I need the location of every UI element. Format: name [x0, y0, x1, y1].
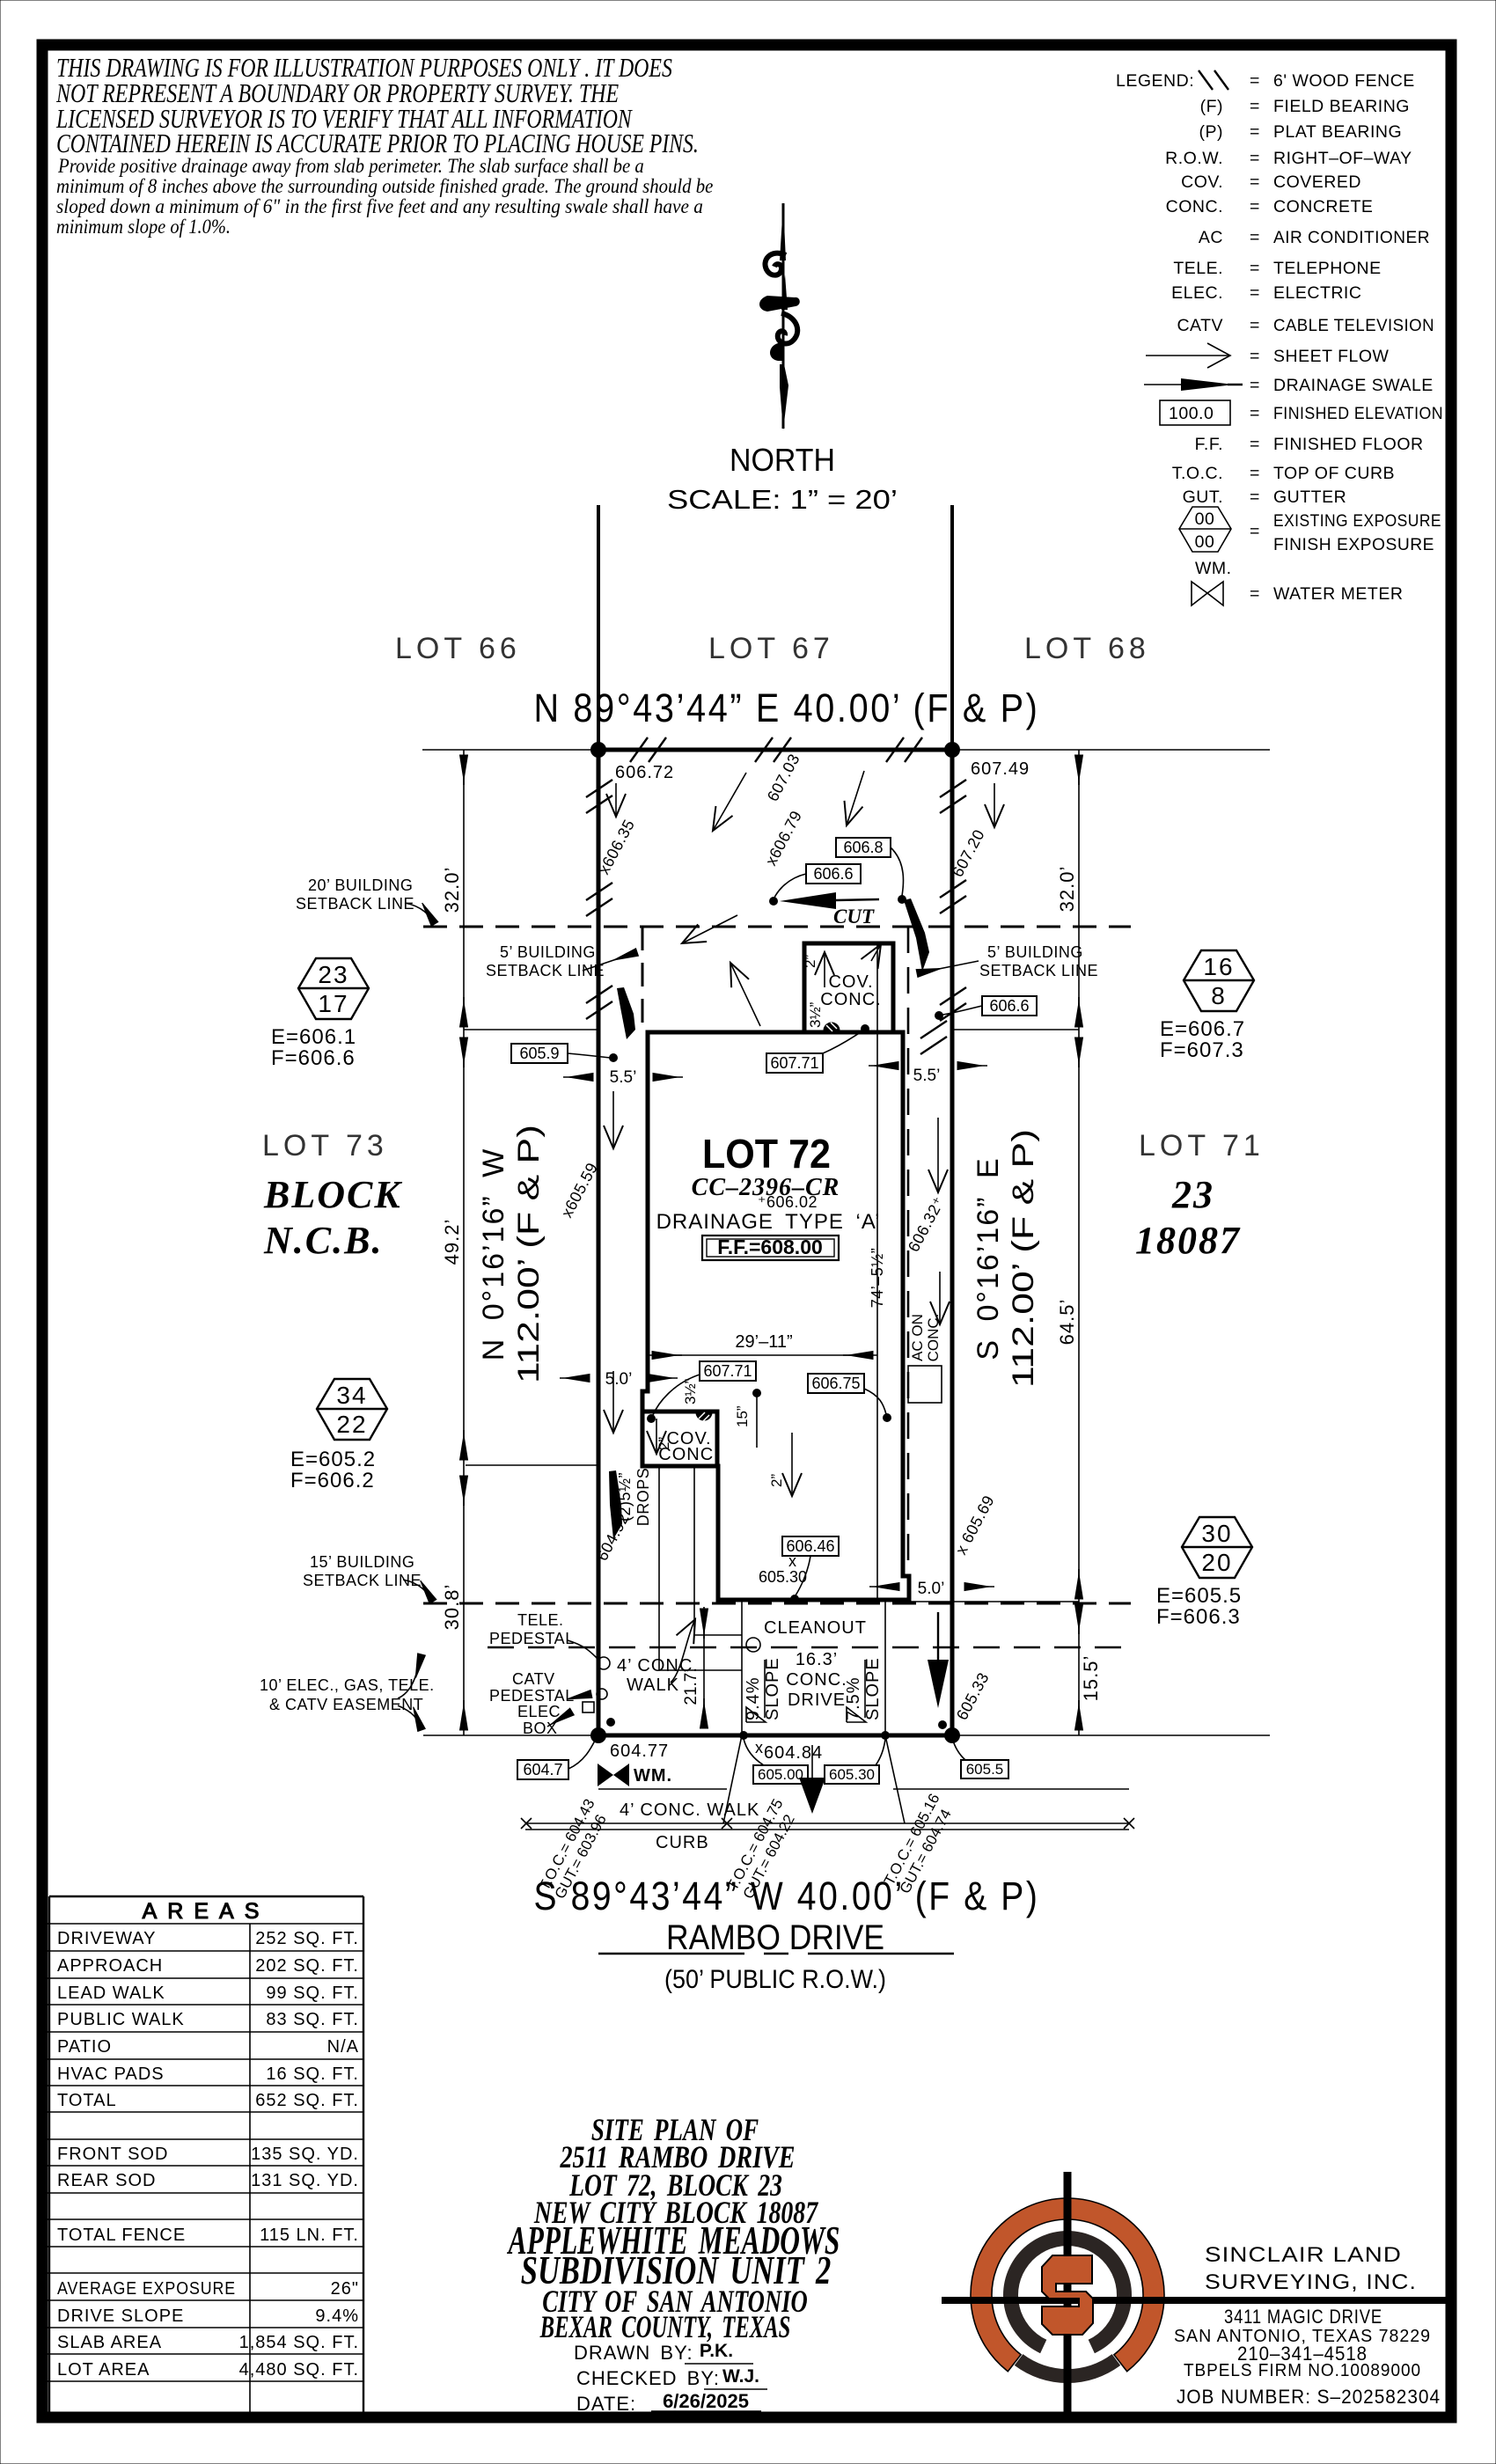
svg-text:DRIVE SLOPE: DRIVE SLOPE — [57, 2306, 184, 2326]
svg-text:E=605.5: E=605.5 — [1156, 1584, 1242, 1608]
svg-text:FINISH EXPOSURE: FINISH EXPOSURE — [1273, 535, 1434, 554]
svg-text:AC: AC — [1199, 228, 1223, 247]
svg-text:607.71: 607.71 — [703, 1362, 752, 1380]
svg-text:PUBLIC WALK: PUBLIC WALK — [57, 2010, 185, 2029]
svg-text:F.F.=608.00: F.F.=608.00 — [717, 1236, 823, 1258]
svg-text:E=606.7: E=606.7 — [1160, 1017, 1245, 1041]
svg-text:TOP OF CURB: TOP OF CURB — [1273, 464, 1395, 483]
svg-text:SINCLAIR LAND: SINCLAIR LAND — [1205, 2243, 1402, 2267]
svg-text:30: 30 — [1201, 1520, 1232, 1547]
svg-text:W.J.: W.J. — [722, 2366, 759, 2387]
svg-text:LOT 72: LOT 72 — [702, 1131, 831, 1177]
svg-text:LOT 67: LOT 67 — [708, 632, 834, 665]
svg-text:BEXAR COUNTY, TEXAS: BEXAR COUNTY, TEXAS — [539, 2309, 791, 2344]
svg-text:PATIO: PATIO — [57, 2037, 112, 2057]
svg-text:SETBACK LINE: SETBACK LINE — [296, 895, 414, 913]
svg-text:TOTAL: TOTAL — [57, 2091, 117, 2110]
svg-text:16: 16 — [1203, 953, 1234, 980]
svg-text:EXISTING EXPOSURE: EXISTING EXPOSURE — [1273, 511, 1441, 531]
svg-text:DRAINAGE TYPE ‘A’: DRAINAGE TYPE ‘A’ — [656, 1210, 881, 1234]
svg-text:26": 26" — [331, 2279, 359, 2299]
svg-text:S 89°43’44” W 40.00’ (F & P): S 89°43’44” W 40.00’ (F & P) — [534, 1874, 1040, 1918]
svg-text:606.72: 606.72 — [615, 763, 674, 782]
svg-text:FINISHED ELEVATION: FINISHED ELEVATION — [1273, 404, 1443, 423]
svg-text:=: = — [1250, 71, 1260, 91]
svg-text:(P): (P) — [1199, 122, 1224, 142]
svg-text:P.K.: P.K. — [700, 2341, 733, 2361]
svg-text:83 SQ. FT.: 83 SQ. FT. — [266, 2010, 359, 2029]
svg-text:ELEC.: ELEC. — [517, 1703, 566, 1720]
svg-text:=: = — [1250, 316, 1260, 335]
svg-text:FRONT SOD: FRONT SOD — [57, 2145, 168, 2164]
svg-text:=: = — [1250, 97, 1260, 116]
svg-text:AIR CONDITIONER: AIR CONDITIONER — [1273, 228, 1430, 247]
svg-text:TOTAL FENCE: TOTAL FENCE — [57, 2226, 186, 2245]
svg-text:15”: 15” — [734, 1405, 751, 1427]
svg-text:x: x — [755, 1739, 764, 1756]
svg-text:BLOCK: BLOCK — [263, 1173, 402, 1216]
svg-text:N/A: N/A — [327, 2037, 359, 2057]
svg-text:(50’ PUBLIC R.O.W.): (50’ PUBLIC R.O.W.) — [664, 1965, 886, 1994]
svg-text:115 LN. FT.: 115 LN. FT. — [260, 2226, 359, 2245]
svg-text:2”: 2” — [768, 1474, 785, 1487]
svg-text:SCALE: 1” = 20’: SCALE: 1” = 20’ — [667, 484, 898, 515]
svg-text:(F): (F) — [1200, 97, 1223, 116]
svg-text:E=606.1: E=606.1 — [271, 1025, 356, 1049]
svg-text:3411 MAGIC DRIVE: 3411 MAGIC DRIVE — [1224, 2306, 1382, 2328]
svg-text:16.3’: 16.3’ — [796, 1650, 838, 1669]
svg-text:6/26/2025: 6/26/2025 — [663, 2390, 749, 2412]
svg-text:605.00: 605.00 — [758, 1766, 803, 1783]
svg-text:604.7: 604.7 — [523, 1761, 562, 1778]
svg-text:CABLE TELEVISION: CABLE TELEVISION — [1273, 316, 1434, 335]
svg-text:PEDESTAL: PEDESTAL — [489, 1687, 575, 1705]
svg-text:=: = — [1250, 376, 1260, 395]
svg-text:20: 20 — [1201, 1549, 1232, 1576]
svg-text:607.49: 607.49 — [971, 759, 1030, 779]
svg-text:APPROACH: APPROACH — [57, 1956, 163, 1976]
svg-text:LEAD WALK: LEAD WALK — [57, 1984, 165, 2003]
svg-text:LOT 71: LOT 71 — [1139, 1129, 1265, 1162]
svg-text:606.6: 606.6 — [989, 997, 1029, 1015]
svg-text:TELE.: TELE. — [1173, 259, 1223, 278]
svg-text:2”: 2” — [802, 955, 818, 968]
svg-text:PLAT BEARING: PLAT BEARING — [1273, 122, 1402, 142]
svg-text:99 SQ. FT.: 99 SQ. FT. — [266, 1984, 359, 2003]
svg-text:CONC.: CONC. — [820, 990, 881, 1009]
svg-text:LEGEND:: LEGEND: — [1116, 71, 1194, 91]
svg-text:GUT.: GUT. — [1183, 488, 1223, 507]
svg-text:5’ BUILDING: 5’ BUILDING — [500, 943, 596, 961]
svg-text:SETBACK LINE: SETBACK LINE — [303, 1572, 422, 1589]
svg-text:T.O.C.: T.O.C. — [1172, 464, 1223, 483]
svg-text:29’–11”: 29’–11” — [735, 1332, 792, 1352]
svg-text:1,854 SQ. FT.: 1,854 SQ. FT. — [239, 2333, 359, 2352]
svg-text:TELEPHONE: TELEPHONE — [1273, 259, 1382, 278]
svg-text:202 SQ. FT.: 202 SQ. FT. — [255, 1956, 359, 1976]
svg-text:49.2’: 49.2’ — [441, 1219, 463, 1265]
svg-text:9.4%: 9.4% — [315, 2306, 359, 2326]
svg-text:CUT: CUT — [833, 906, 875, 928]
svg-text:=: = — [1250, 404, 1260, 423]
svg-text:ELECTRIC: ELECTRIC — [1273, 283, 1361, 303]
svg-text:=: = — [1250, 435, 1260, 454]
svg-text:FINISHED FLOOR: FINISHED FLOOR — [1273, 435, 1424, 454]
svg-text:2”: 2” — [656, 1437, 672, 1450]
svg-text:REAR SOD: REAR SOD — [57, 2171, 156, 2190]
svg-text:00: 00 — [1195, 532, 1215, 552]
svg-text:4’ CONC.: 4’ CONC. — [617, 1656, 699, 1676]
svg-text:SLOPE: SLOPE — [763, 1657, 782, 1720]
svg-text:GUTTER: GUTTER — [1273, 488, 1346, 507]
svg-text:64.5’: 64.5’ — [1056, 1299, 1078, 1346]
svg-text:605.30: 605.30 — [829, 1766, 875, 1783]
svg-text:F=607.3: F=607.3 — [1160, 1038, 1244, 1062]
svg-text:F.F.: F.F. — [1195, 435, 1223, 454]
svg-text:18087: 18087 — [1135, 1219, 1241, 1262]
svg-text:WATER METER: WATER METER — [1273, 584, 1403, 604]
svg-text:=: = — [1250, 259, 1260, 278]
svg-text:CATV: CATV — [512, 1670, 555, 1688]
svg-text:10’ ELEC., GAS, TELE.: 10’ ELEC., GAS, TELE. — [260, 1676, 435, 1694]
svg-text:604.77: 604.77 — [610, 1742, 669, 1761]
svg-text:=: = — [1250, 488, 1260, 507]
svg-text:sloped down a minimum of 6" in: sloped down a minimum of 6" in the first… — [56, 194, 703, 217]
svg-text:22: 22 — [336, 1411, 367, 1438]
svg-text:=: = — [1250, 172, 1260, 192]
svg-text:minimum slope of 1.0%.: minimum slope of 1.0%. — [56, 216, 231, 238]
svg-text:SURVEYING, INC.: SURVEYING, INC. — [1205, 2270, 1417, 2294]
svg-text:F=606.6: F=606.6 — [271, 1046, 356, 1070]
svg-text:E=605.2: E=605.2 — [290, 1448, 376, 1471]
svg-text:=: = — [1250, 522, 1260, 541]
svg-text:F=606.3: F=606.3 — [1156, 1605, 1241, 1629]
svg-text:16 SQ. FT.: 16 SQ. FT. — [266, 2064, 359, 2084]
svg-text:WM.: WM. — [634, 1766, 672, 1786]
svg-text:=: = — [1250, 347, 1260, 366]
svg-text:SLAB AREA: SLAB AREA — [57, 2333, 162, 2352]
svg-text:5.5’: 5.5’ — [913, 1067, 941, 1085]
svg-text:15’ BUILDING: 15’ BUILDING — [310, 1553, 414, 1571]
svg-text:32.0’: 32.0’ — [1056, 866, 1078, 913]
svg-text:606.75: 606.75 — [811, 1375, 860, 1392]
svg-text:652 SQ. FT.: 652 SQ. FT. — [255, 2091, 359, 2110]
svg-text:PEDESTAL: PEDESTAL — [489, 1630, 575, 1647]
svg-text:15.5’: 15.5’ — [1080, 1655, 1102, 1702]
svg-text:AC ON: AC ON — [909, 1314, 926, 1361]
svg-text:⁺606.02: ⁺606.02 — [758, 1193, 818, 1211]
svg-text:DRIVEWAY: DRIVEWAY — [57, 1929, 156, 1948]
svg-text:LOT 66: LOT 66 — [395, 632, 521, 665]
svg-text:606.6: 606.6 — [813, 865, 853, 883]
svg-text:605.5: 605.5 — [966, 1761, 1004, 1778]
svg-text:WALK: WALK — [627, 1676, 679, 1695]
svg-text:607.71: 607.71 — [770, 1054, 818, 1072]
svg-text:00: 00 — [1195, 510, 1215, 529]
svg-text:RIGHT–OF–WAY: RIGHT–OF–WAY — [1273, 149, 1412, 168]
svg-text:4,480 SQ. FT.: 4,480 SQ. FT. — [239, 2360, 359, 2380]
svg-text:5.0’: 5.0’ — [605, 1370, 633, 1389]
svg-text:5’ BUILDING: 5’ BUILDING — [987, 943, 1083, 961]
svg-text:=: = — [1250, 283, 1260, 303]
svg-text:COV.: COV. — [1181, 172, 1223, 192]
svg-text:=: = — [1250, 149, 1260, 168]
svg-text:DATE:: DATE: — [576, 2393, 636, 2415]
svg-text:DRAINAGE SWALE: DRAINAGE SWALE — [1273, 376, 1434, 395]
svg-text:23: 23 — [318, 961, 348, 988]
svg-text:135 SQ. YD.: 135 SQ. YD. — [251, 2145, 359, 2164]
svg-text:WM.: WM. — [1195, 559, 1232, 578]
svg-text:604.84: 604.84 — [764, 1743, 823, 1763]
svg-text:605.30: 605.30 — [759, 1568, 807, 1586]
svg-text:S 0°16’16” E: S 0°16’16” E — [972, 1156, 1005, 1360]
svg-text:100.0: 100.0 — [1169, 404, 1214, 423]
svg-text:112.00’ (F & P): 112.00’ (F & P) — [1007, 1129, 1040, 1388]
svg-text:CONCRETE: CONCRETE — [1273, 197, 1373, 216]
svg-text:CONC.: CONC. — [786, 1670, 847, 1690]
svg-text:30.8’: 30.8’ — [441, 1584, 463, 1631]
svg-text:N.C.B.: N.C.B. — [263, 1219, 383, 1262]
svg-text:131 SQ. YD.: 131 SQ. YD. — [251, 2171, 359, 2190]
svg-text:=: = — [1250, 122, 1260, 142]
svg-text:=: = — [1250, 197, 1260, 216]
svg-text:=: = — [1250, 584, 1260, 604]
svg-text:17: 17 — [318, 990, 348, 1017]
svg-text:DROPS: DROPS — [634, 1468, 652, 1527]
svg-text:LOT 68: LOT 68 — [1024, 632, 1150, 665]
svg-text:RAMBO DRIVE: RAMBO DRIVE — [666, 1918, 884, 1957]
svg-text:NORTH: NORTH — [730, 442, 835, 478]
svg-text:112.00’ (F & P): 112.00’ (F & P) — [512, 1125, 546, 1383]
svg-text:N 0°16’16” W: N 0°16’16” W — [477, 1148, 510, 1361]
svg-text:5.0’: 5.0’ — [918, 1580, 945, 1598]
svg-text:TBPELS FIRM NO.10089000: TBPELS FIRM NO.10089000 — [1184, 2361, 1421, 2380]
svg-text:252 SQ. FT.: 252 SQ. FT. — [255, 1929, 359, 1948]
svg-text:CURB: CURB — [656, 1833, 709, 1852]
svg-text:BOX: BOX — [523, 1720, 558, 1737]
svg-text:74’–5½”: 74’–5½” — [869, 1248, 886, 1309]
svg-text:SETBACK LINE: SETBACK LINE — [979, 962, 1098, 979]
svg-text:32.0’: 32.0’ — [441, 867, 463, 913]
svg-text:F=606.2: F=606.2 — [290, 1469, 375, 1492]
svg-text:605.9: 605.9 — [519, 1045, 559, 1062]
svg-text:23: 23 — [1171, 1173, 1214, 1216]
svg-text:CHECKED BY:: CHECKED BY: — [576, 2367, 720, 2389]
svg-text:LOT 73: LOT 73 — [262, 1129, 388, 1162]
svg-text:CONC.: CONC. — [925, 1314, 942, 1362]
svg-text:8: 8 — [1211, 982, 1227, 1009]
svg-text:20’ BUILDING: 20’ BUILDING — [308, 876, 413, 894]
svg-text:HVAC PADS: HVAC PADS — [57, 2064, 165, 2084]
svg-text:FIELD BEARING: FIELD BEARING — [1273, 97, 1410, 116]
svg-text:6' WOOD FENCE: 6' WOOD FENCE — [1273, 71, 1415, 91]
svg-text:JOB NUMBER: S–202582304: JOB NUMBER: S–202582304 — [1177, 2386, 1441, 2408]
svg-text:LOT AREA: LOT AREA — [57, 2360, 150, 2380]
svg-text:AREAS: AREAS — [143, 1899, 270, 1924]
svg-text:SLOPE: SLOPE — [863, 1657, 883, 1720]
svg-text:34: 34 — [336, 1382, 367, 1409]
svg-text:DRAWN BY:: DRAWN BY: — [574, 2342, 693, 2364]
svg-text:COVERED: COVERED — [1273, 172, 1361, 192]
svg-text:R.O.W.: R.O.W. — [1165, 149, 1223, 168]
svg-text:& CATV EASEMENT: & CATV EASEMENT — [269, 1696, 423, 1713]
svg-text:4’ CONC. WALK: 4’ CONC. WALK — [620, 1800, 759, 1820]
svg-text:=: = — [1250, 464, 1260, 483]
svg-text:CATV: CATV — [1177, 316, 1223, 335]
svg-text:5.5’: 5.5’ — [610, 1068, 637, 1087]
svg-text:ELEC.: ELEC. — [1171, 283, 1223, 303]
svg-text:x: x — [788, 1552, 797, 1570]
svg-text:3½”: 3½” — [807, 1001, 824, 1028]
svg-text:CONC.: CONC. — [1166, 197, 1223, 216]
svg-text:3½”: 3½” — [682, 1378, 699, 1404]
svg-text:CLEANOUT: CLEANOUT — [764, 1618, 867, 1638]
svg-text:AVERAGE EXPOSURE: AVERAGE EXPOSURE — [57, 2279, 236, 2299]
svg-text:TELE.: TELE. — [517, 1611, 564, 1629]
svg-text:SETBACK LINE: SETBACK LINE — [486, 962, 605, 979]
svg-text:606.8: 606.8 — [843, 839, 883, 856]
svg-text:=: = — [1250, 228, 1260, 247]
svg-text:SHEET FLOW: SHEET FLOW — [1273, 347, 1390, 366]
svg-text:DRIVE: DRIVE — [788, 1690, 846, 1710]
svg-text:COV.: COV. — [828, 972, 873, 992]
svg-text:N 89°43’44” E 40.00’ (F & P): N 89°43’44” E 40.00’ (F & P) — [534, 686, 1040, 730]
